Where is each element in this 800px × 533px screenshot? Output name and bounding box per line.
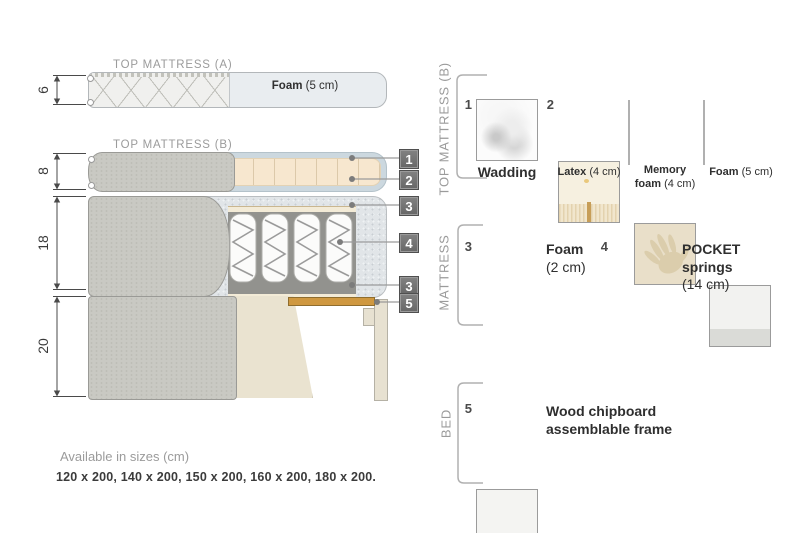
wadding-thumbnail — [476, 99, 538, 161]
mattress-button — [88, 156, 95, 163]
top-mattress-a-title: TOP MATTRESS (A) — [113, 59, 233, 71]
callout-3-top: 3 — [399, 196, 419, 216]
memory-foam-caption: Memory foam (4 cm) — [630, 164, 700, 192]
wadding-layer-shape — [226, 152, 387, 192]
foam-2cm-detail: (2 cm) — [546, 259, 586, 275]
sizes-list: 120 x 200, 140 x 200, 150 x 200, 160 x 2… — [56, 470, 376, 484]
legend-separator — [628, 100, 630, 165]
memory-foam-detail: (4 cm) — [664, 178, 695, 190]
fabric-cover-top-b — [88, 152, 235, 192]
dimension-label-6: 6 — [35, 75, 55, 105]
callout-5: 5 — [399, 293, 419, 313]
callout-4: 4 — [399, 233, 419, 253]
latex-blocks — [232, 158, 381, 186]
chipboard-caption: Wood chipboard assemblable frame — [546, 403, 711, 438]
pocket-springs-name: POCKET springs — [682, 241, 740, 275]
legend-item-1-number: 1 — [460, 97, 472, 112]
bed-base-fabric — [232, 296, 313, 398]
legend-item-3-number: 3 — [460, 239, 472, 254]
foam-5cm-detail: (5 cm) — [742, 166, 773, 178]
legend-item-5-number: 5 — [460, 401, 472, 416]
foam-5cm-caption: Foam (5 cm) — [700, 166, 782, 180]
wood-slat — [288, 297, 375, 306]
dimension-label-20: 20 — [35, 331, 55, 361]
bed-frame-rail — [374, 299, 388, 401]
pocket-springs-graphic — [228, 212, 356, 284]
sizes-title: Available in sizes (cm) — [60, 449, 189, 464]
foam-detail: (5 cm) — [306, 80, 339, 92]
callout-1: 1 — [399, 149, 419, 169]
latex-name: Latex — [558, 166, 587, 178]
top-mattress-b-title: TOP MATTRESS (B) — [113, 139, 233, 151]
foam-2cm-thumbnail — [476, 489, 538, 533]
mattress-button — [87, 99, 94, 106]
pocket-springs-detail: (14 cm) — [682, 276, 729, 292]
legend-item-4-number: 4 — [596, 239, 608, 254]
bed-construction-diagram: TOP MATTRESS (A) TOP MATTRESS (B) 6 8 18… — [0, 0, 800, 533]
foam-2cm-name: Foam — [546, 241, 583, 257]
legend-separator — [703, 100, 705, 165]
bed-frame-bracket — [363, 308, 375, 326]
legend-item-2-number: 2 — [542, 97, 554, 112]
fabric-cover-bed — [88, 296, 237, 400]
legend-group-mattress-label: MATTRESS — [437, 223, 452, 323]
mattress-button — [87, 75, 94, 82]
foam-5cm-name: Foam — [709, 166, 738, 178]
latex-detail: (4 cm) — [589, 166, 620, 178]
fabric-cover-mattress — [88, 196, 230, 297]
wadding-caption: Wadding — [462, 164, 552, 182]
dimension-label-8: 8 — [35, 156, 55, 186]
foam-layer-label: Foam (5 cm) — [230, 80, 380, 92]
mattress-button — [88, 182, 95, 189]
callout-2: 2 — [399, 170, 419, 190]
foam-name: Foam — [272, 80, 303, 92]
foam-5cm-thumbnail — [709, 285, 771, 347]
quilt-trim — [89, 73, 229, 77]
quilted-surface — [89, 73, 230, 107]
latex-notch — [587, 202, 591, 222]
pocket-springs-caption: POCKET springs (14 cm) — [682, 241, 762, 294]
latex-caption: Latex (4 cm) — [548, 166, 630, 180]
dimension-label-18: 18 — [35, 228, 55, 258]
legend-group-bed-label: BED — [439, 394, 454, 454]
legend-group-top-b-label: TOP MATTRESS (B) — [437, 64, 452, 196]
